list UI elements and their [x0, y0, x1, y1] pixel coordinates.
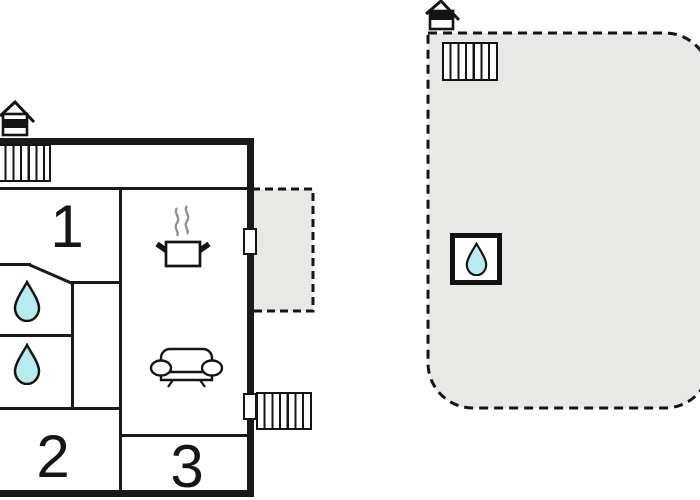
wall-right	[247, 138, 254, 497]
interior-wall	[0, 187, 249, 190]
interior-wall	[71, 281, 121, 284]
water-drop-icon	[13, 343, 41, 385]
interior-wall	[0, 334, 73, 337]
framed-water-drop-icon	[450, 233, 502, 285]
sofa-icon	[149, 342, 225, 388]
door	[243, 393, 257, 420]
room-2-label: 2	[22, 428, 82, 486]
interior-wall	[0, 407, 122, 410]
chimney-icon	[424, 0, 460, 31]
water-drop-icon	[13, 280, 41, 322]
room-1-label: 1	[36, 198, 96, 256]
stairs-icon	[442, 42, 498, 81]
attached-terrace-outline	[252, 186, 318, 316]
stairs-icon	[256, 392, 312, 430]
steam-icon	[176, 206, 188, 236]
floor-plan-canvas: 1 2 3	[0, 0, 700, 500]
water-drop-icon	[465, 242, 488, 276]
interior-wall	[119, 187, 122, 491]
chimney-icon	[0, 99, 36, 137]
door	[243, 228, 257, 255]
garden-terrace-outline	[425, 30, 700, 416]
interior-wall	[0, 263, 31, 266]
interior-wall	[71, 281, 74, 410]
room-3-label: 3	[156, 438, 216, 496]
stairs-icon	[0, 144, 51, 182]
cooking-pot-icon	[153, 203, 213, 269]
